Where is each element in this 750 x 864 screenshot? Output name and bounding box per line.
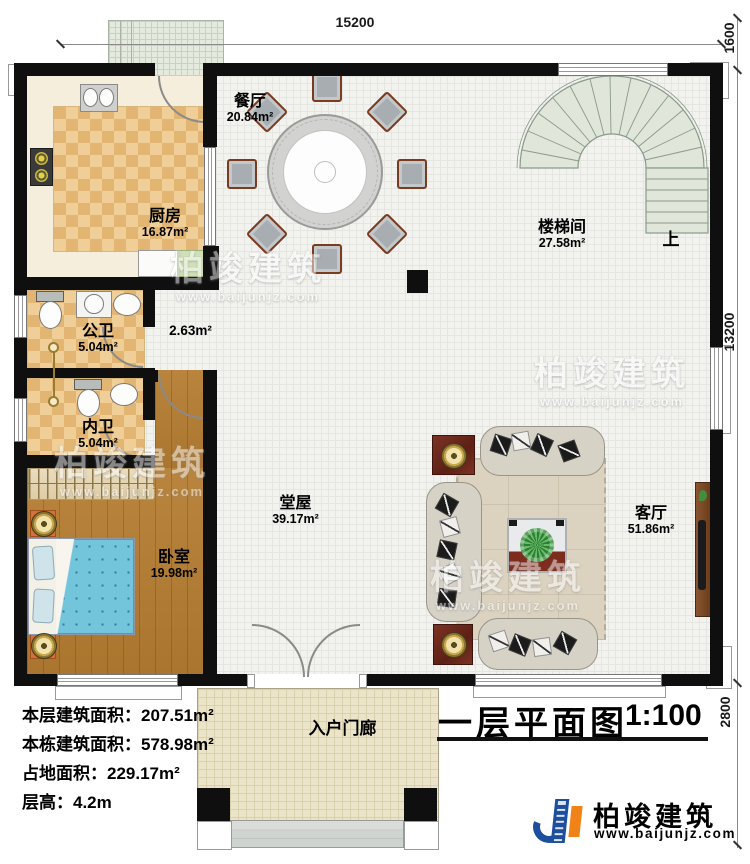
sofa-pillow — [437, 588, 457, 608]
wall-segment — [205, 63, 558, 76]
dim-right-bottom: 2800 — [717, 687, 733, 737]
wall-segment — [14, 338, 27, 398]
stairs — [505, 76, 715, 236]
window-public-bath — [14, 295, 27, 338]
window-living-right — [710, 347, 723, 430]
room-label-hall: 堂屋 39.17m² — [258, 495, 333, 526]
nightstand-lamp — [31, 511, 57, 537]
sliding-door-kitchen — [204, 147, 216, 246]
dim-right-top: 1600 — [721, 13, 737, 63]
stat-line: 层高：4.2m — [22, 788, 214, 817]
label-small-area: 2.63m² — [163, 324, 218, 339]
window-sill-bedroom — [55, 686, 182, 700]
dining-chair — [227, 159, 257, 189]
wall-bath-right — [143, 290, 155, 327]
pillow — [32, 545, 55, 580]
wall-segment — [365, 674, 475, 686]
towel-rail-end — [48, 396, 59, 407]
toilet — [39, 301, 62, 329]
kitchen-sink-basin — [83, 88, 98, 107]
stove-burner — [35, 152, 48, 165]
room-label-porch: 入户门廊 — [300, 720, 385, 739]
kitchen-cabinet-white — [138, 250, 178, 277]
table-lamp — [441, 443, 467, 469]
plan-scale: 1:100 — [625, 699, 702, 733]
porch-column-base-right — [404, 821, 439, 850]
wall-bath-divider — [27, 368, 145, 378]
logo-building-orange-icon — [568, 806, 582, 837]
stat-line: 占地面积：229.17m² — [22, 759, 214, 788]
window-bedroom — [57, 674, 178, 686]
sofa-pillow — [436, 539, 457, 560]
stove-burner — [35, 169, 48, 182]
title-underline — [437, 737, 708, 741]
area-stats: 本层建筑面积：207.51m² 本栋建筑面积：578.98m² 占地面积：229… — [22, 701, 214, 817]
coffee-table-corner — [509, 520, 517, 526]
window-private-bath — [14, 398, 27, 442]
wall-segment — [178, 674, 247, 686]
room-label-private-bath: 内卫 5.04m² — [63, 419, 133, 450]
dining-chair — [312, 244, 342, 274]
entry-door-jamb — [359, 674, 367, 688]
washbasin — [113, 293, 141, 316]
window-living-bottom — [475, 674, 662, 686]
table-lamp — [441, 632, 467, 658]
tv-cabinet-plant — [699, 490, 707, 501]
entry-steps — [230, 820, 404, 848]
wall-segment — [14, 442, 27, 686]
tv — [698, 520, 706, 590]
wall-door-jamb — [143, 370, 158, 382]
entry-door-jamb — [247, 674, 255, 688]
dimension-line-right — [737, 18, 738, 848]
porch-column-base-left — [197, 821, 232, 850]
wall-segment — [14, 63, 27, 295]
pillow — [32, 588, 55, 623]
logo-building-blue-icon — [551, 799, 570, 843]
company-website: www.baijunjz.com — [594, 826, 736, 841]
sofa-pillow — [511, 431, 532, 452]
wall-bedroom-top — [27, 455, 155, 468]
dim-top: 15200 — [320, 14, 390, 30]
entry-porch-floor — [197, 688, 439, 822]
room-label-stairwell: 楼梯间 27.58m² — [523, 219, 601, 250]
room-label-dining: 餐厅 20.84m² — [215, 93, 285, 124]
dining-chair — [312, 72, 342, 102]
stat-line: 本栋建筑面积：578.98m² — [22, 730, 214, 759]
wall-segment — [710, 63, 723, 347]
kitchen-sink-basin — [99, 88, 114, 107]
toilet — [77, 389, 100, 417]
room-label-living: 客厅 51.86m² — [612, 505, 690, 536]
room-label-bedroom: 卧室 19.98m² — [139, 549, 209, 580]
column — [407, 270, 428, 293]
wardrobe — [28, 468, 154, 500]
dim-right-mid: 13200 — [721, 307, 737, 357]
wall-segment — [14, 63, 155, 76]
floorplan-canvas: 15200 1600 13200 2800 餐厅 20.84m² 厨房 16.8… — [0, 0, 750, 864]
window-stairwell — [558, 63, 668, 76]
towel-rail-end — [48, 342, 59, 353]
wardrobe-rod — [28, 483, 154, 484]
kitchen-cabinet-green — [178, 250, 204, 277]
wall-kitchen-bottom — [27, 277, 207, 290]
room-label-kitchen: 厨房 16.87m² — [130, 208, 200, 239]
coffee-table-corner — [556, 520, 564, 526]
dimension-line-top — [60, 44, 723, 45]
logo-mark-icon — [533, 797, 585, 847]
porch-column-right — [404, 788, 437, 821]
wall-segment — [710, 430, 723, 686]
sofa-pillow — [532, 637, 552, 657]
stat-line: 本层建筑面积：207.51m² — [22, 701, 214, 730]
dining-table-center — [314, 161, 336, 183]
washbasin — [110, 383, 138, 406]
towel-rail — [53, 349, 55, 401]
plant — [520, 528, 554, 562]
label-stairs-up: 上 — [658, 231, 684, 250]
nightstand-lamp — [31, 633, 57, 659]
wall-bedroom-right — [203, 370, 217, 674]
room-label-public-bath: 公卫 5.04m² — [63, 323, 133, 354]
bed-sheet-fold — [56, 539, 86, 634]
dining-chair — [397, 159, 427, 189]
vanity-basin — [84, 294, 104, 314]
